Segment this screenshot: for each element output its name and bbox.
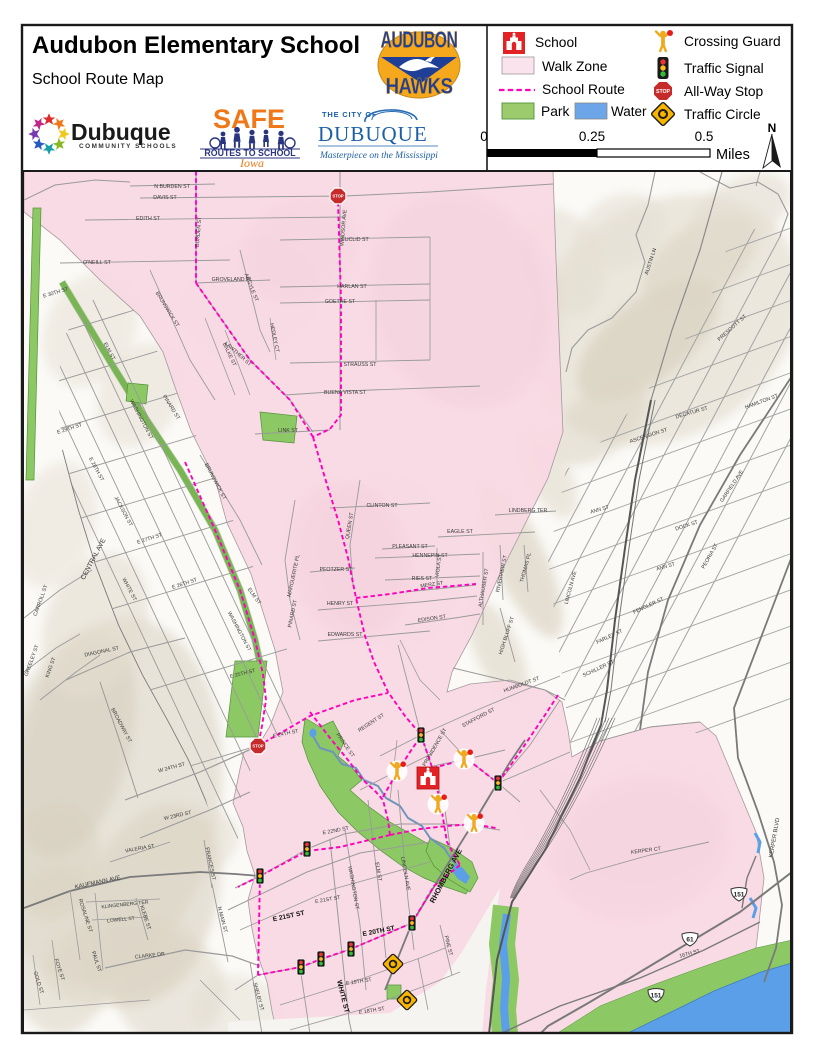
svg-text:HARLAN ST: HARLAN ST	[337, 284, 367, 290]
svg-text:LINK ST: LINK ST	[278, 428, 299, 434]
svg-text:All-Way Stop: All-Way Stop	[684, 84, 764, 99]
svg-text:N BURDEN ST: N BURDEN ST	[154, 184, 190, 190]
svg-text:Walk Zone: Walk Zone	[542, 59, 608, 74]
svg-text:AUDUBON: AUDUBON	[381, 28, 458, 54]
svg-text:Traffic Circle: Traffic Circle	[684, 107, 761, 122]
svg-text:CLINTON ST: CLINTON ST	[366, 503, 398, 509]
svg-text:STOP: STOP	[332, 194, 344, 199]
svg-text:EDITH ST: EDITH ST	[136, 216, 161, 222]
svg-text:O'NEILL ST: O'NEILL ST	[83, 260, 111, 266]
svg-text:Park: Park	[541, 104, 569, 119]
svg-text:PLEASANT ST: PLEASANT ST	[392, 544, 428, 550]
svg-text:151: 151	[734, 892, 745, 899]
svg-text:61: 61	[686, 937, 694, 944]
svg-text:EAGLE ST: EAGLE ST	[447, 529, 473, 535]
svg-text:0.5: 0.5	[695, 129, 714, 144]
svg-text:0.25: 0.25	[579, 129, 605, 144]
svg-text:Miles: Miles	[716, 147, 750, 163]
svg-text:Traffic Signal: Traffic Signal	[684, 61, 764, 76]
svg-text:Audubon Elementary School: Audubon Elementary School	[32, 32, 360, 59]
svg-text:LINDBERG TER: LINDBERG TER	[509, 508, 548, 514]
svg-text:RIES ST: RIES ST	[412, 576, 433, 582]
svg-text:PFOTZER ST: PFOTZER ST	[320, 567, 353, 573]
svg-text:HENRY ST: HENRY ST	[327, 601, 354, 607]
svg-text:Water: Water	[611, 104, 647, 119]
svg-text:Iowa: Iowa	[239, 156, 264, 170]
svg-text:N: N	[768, 121, 777, 135]
svg-text:Crossing Guard: Crossing Guard	[684, 34, 781, 49]
svg-text:COMMUNITY SCHOOLS: COMMUNITY SCHOOLS	[79, 143, 177, 150]
svg-text:GOETHE ST: GOETHE ST	[325, 299, 356, 305]
svg-text:STOP: STOP	[656, 89, 671, 95]
svg-text:Dubuque: Dubuque	[71, 119, 171, 145]
svg-text:DAVIS ST: DAVIS ST	[153, 195, 177, 201]
svg-text:BUENA VISTA ST: BUENA VISTA ST	[324, 390, 367, 396]
svg-text:DUBUQUE: DUBUQUE	[318, 122, 428, 146]
svg-text:School Route Map: School Route Map	[32, 71, 164, 88]
svg-text:SAFE: SAFE	[213, 104, 285, 134]
svg-text:School Route: School Route	[542, 82, 625, 97]
svg-text:STRAUSS ST: STRAUSS ST	[344, 362, 378, 368]
svg-text:EDWARDS ST: EDWARDS ST	[328, 632, 364, 638]
svg-text:0: 0	[480, 129, 488, 144]
svg-text:151: 151	[651, 993, 662, 1000]
svg-text:Masterpiece on the Mississippi: Masterpiece on the Mississippi	[319, 151, 438, 161]
svg-text:School: School	[535, 35, 577, 50]
svg-text:HAWKS: HAWKS	[386, 74, 453, 99]
svg-text:STOP: STOP	[252, 744, 264, 749]
